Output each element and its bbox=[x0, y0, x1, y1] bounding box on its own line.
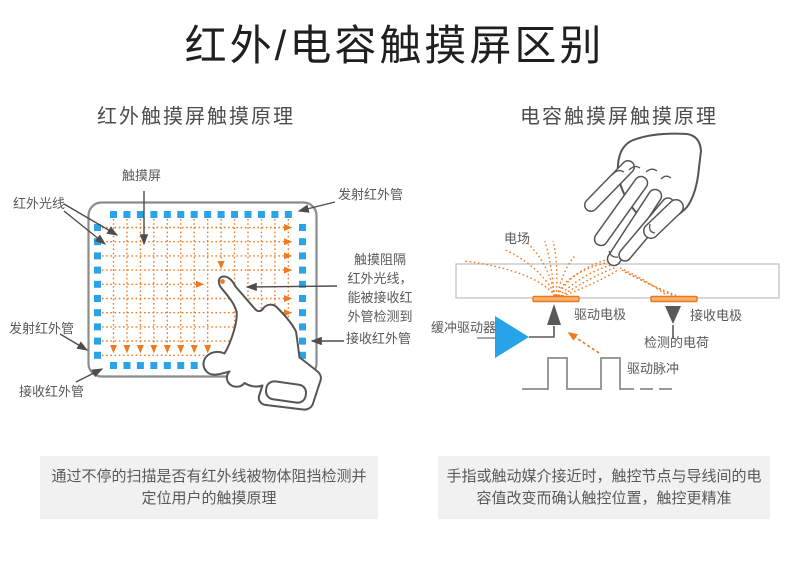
label-buffer-driver: 缓冲驱动器 bbox=[431, 320, 496, 335]
label-ir-rays: 红外光线 bbox=[13, 196, 65, 211]
label-receiver-right: 接收红外管 bbox=[346, 331, 411, 346]
block-note-line: 红外光线， bbox=[347, 271, 412, 286]
drive-electrode-bar bbox=[533, 297, 579, 302]
arrow-emitter-left bbox=[60, 334, 87, 350]
label-block-note: 触摸阻隔 红外光线， 能被接收红 外管检测到 bbox=[339, 250, 421, 326]
left-section-heading: 红外触摸屏触摸原理 bbox=[97, 100, 295, 129]
block-note-line: 触摸阻隔 bbox=[354, 252, 406, 267]
pulse-waveform bbox=[522, 358, 634, 389]
left-caption-box: 通过不停的扫描是否有红外线被物体阻挡检测并定位用户的触摸原理 bbox=[40, 456, 378, 519]
capacitive-diagram bbox=[430, 125, 789, 415]
touch-point-dot bbox=[220, 279, 225, 284]
label-receive-electrode: 接收电极 bbox=[690, 308, 742, 323]
label-efield: 电场 bbox=[504, 231, 530, 246]
receive-electrode-bar bbox=[651, 297, 697, 302]
up-arrow-icon bbox=[547, 304, 561, 325]
drive-wire bbox=[529, 326, 554, 337]
down-arrow-icon bbox=[665, 306, 681, 324]
label-detected-charge: 检测的电荷 bbox=[644, 335, 709, 350]
label-touchscreen: 触摸屏 bbox=[122, 168, 161, 183]
right-caption-text: 手指或触动媒介接近时，触控节点与导线间的电容值改变而确认触控位置，触控更精准 bbox=[443, 466, 765, 510]
block-note-line: 外管检测到 bbox=[347, 309, 412, 324]
infographic-page: 红外/电容触摸屏区别 红外触摸屏触摸原理 电容触摸屏触摸原理 bbox=[0, 0, 789, 587]
label-drive-pulse: 驱动脉冲 bbox=[627, 361, 679, 376]
label-drive-electrode: 驱动电极 bbox=[574, 307, 626, 322]
right-caption-box: 手指或触动媒介接近时，触控节点与导线间的电容值改变而确认触控位置，触控更精准 bbox=[438, 456, 770, 519]
glass-panel bbox=[456, 264, 779, 298]
label-emitter-top: 发射红外管 bbox=[338, 187, 403, 202]
buffer-driver-triangle-icon bbox=[495, 316, 529, 358]
left-caption-text: 通过不停的扫描是否有红外线被物体阻挡检测并定位用户的触摸原理 bbox=[48, 466, 370, 510]
arrow-block-note bbox=[247, 286, 337, 287]
page-title: 红外/电容触摸屏区别 bbox=[0, 12, 789, 73]
label-emitter-left: 发射红外管 bbox=[9, 321, 74, 336]
approaching-hand bbox=[591, 134, 701, 259]
pulse-to-drive-arrow bbox=[569, 333, 599, 353]
label-receiver-bottom: 接收红外管 bbox=[19, 384, 84, 399]
block-note-line: 能被接收红 bbox=[347, 290, 412, 305]
